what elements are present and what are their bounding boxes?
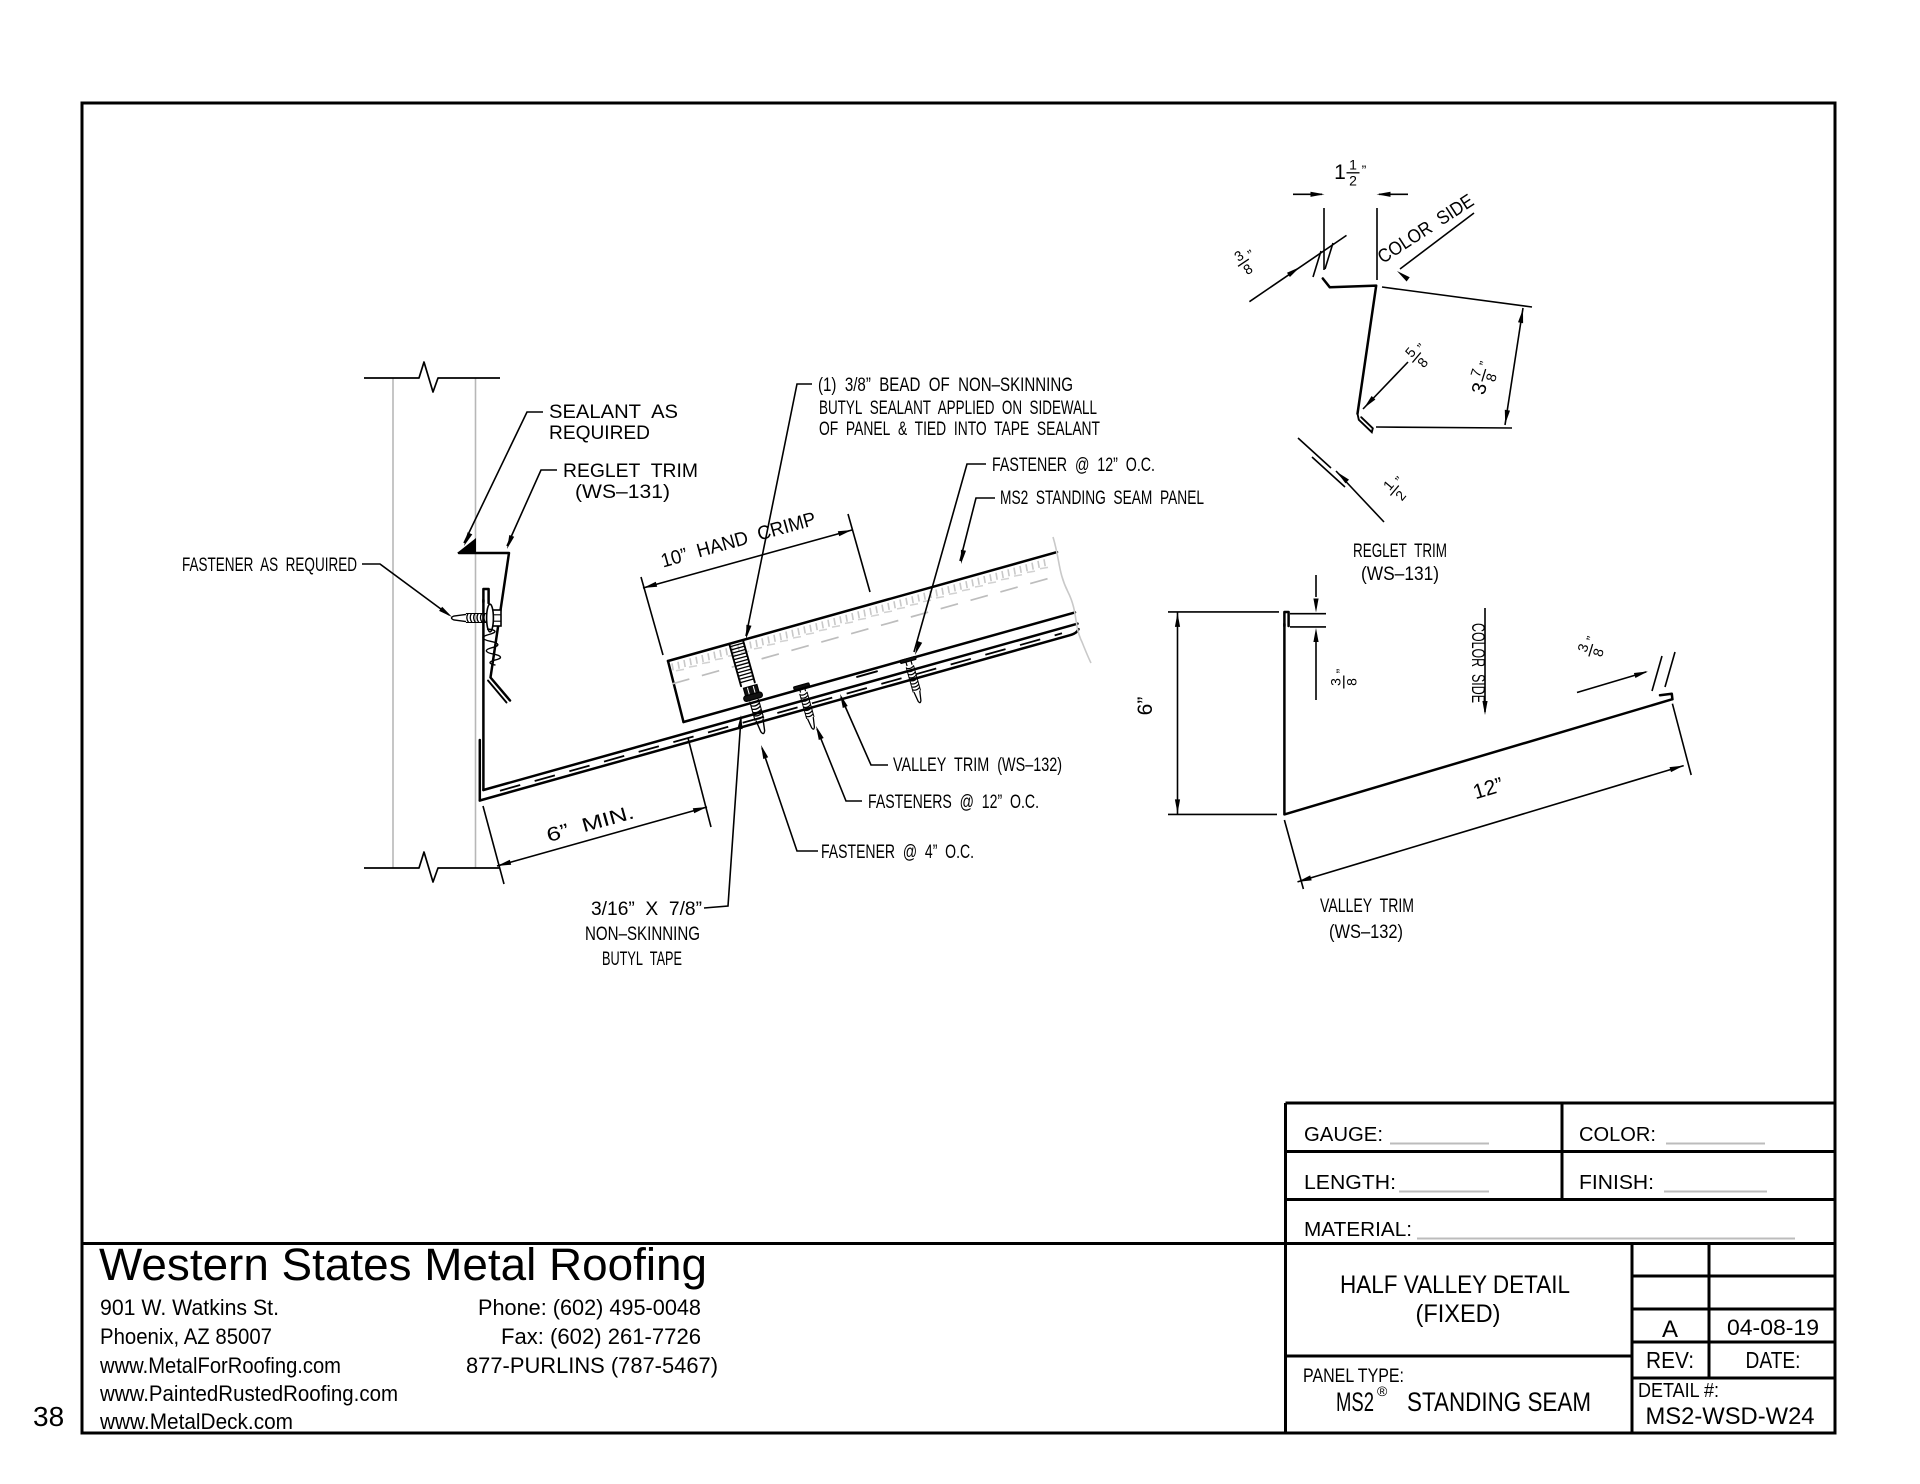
- svg-text:Fax: (602) 261-7726: Fax: (602) 261-7726: [501, 1324, 701, 1349]
- svg-text:REV:: REV:: [1646, 1347, 1694, 1373]
- svg-text:(1) 3/8” BEAD OF NON–SKINN: (1) 3/8” BEAD OF NON–SKINNING: [818, 374, 1073, 396]
- svg-text:NON–SKINNING: NON–SKINNING: [585, 923, 700, 945]
- svg-text:MS2-WSD-W24: MS2-WSD-W24: [1646, 1403, 1815, 1430]
- svg-text:8: 8: [1589, 646, 1607, 658]
- svg-text:3: 3: [1468, 380, 1492, 397]
- svg-text:MATERIAL:: MATERIAL:: [1304, 1219, 1412, 1241]
- svg-text:STANDING SEAM: STANDING SEAM: [1407, 1387, 1591, 1417]
- svg-text:3: 3: [1328, 678, 1344, 686]
- svg-text:8: 8: [1482, 371, 1500, 383]
- svg-text:8: 8: [1414, 354, 1431, 370]
- svg-text:”: ”: [1476, 359, 1493, 368]
- svg-text:MS2 STANDING SEAM PANEL: MS2 STANDING SEAM PANEL: [1000, 487, 1204, 509]
- svg-text:1: 1: [1334, 161, 1346, 184]
- svg-text:www.MetalForRoofing.com: www.MetalForRoofing.com: [99, 1353, 341, 1378]
- svg-text:877-PURLINS (787-5467): 877-PURLINS (787-5467): [466, 1353, 718, 1378]
- svg-text:04-08-19: 04-08-19: [1727, 1315, 1819, 1340]
- svg-text:COLOR:: COLOR:: [1579, 1124, 1656, 1146]
- svg-text:12”: 12”: [1470, 773, 1506, 804]
- svg-text:”: ”: [1333, 668, 1349, 673]
- svg-text:8: 8: [1240, 260, 1256, 278]
- svg-text:REGLET TRIM: REGLET TRIM: [1353, 540, 1447, 562]
- svg-text:8: 8: [1344, 678, 1360, 686]
- svg-text:Phoenix, AZ 85007: Phoenix, AZ 85007: [100, 1324, 272, 1349]
- svg-text:A: A: [1662, 1316, 1678, 1343]
- svg-text:PANEL TYPE:: PANEL TYPE:: [1303, 1366, 1404, 1387]
- svg-text:MS2: MS2: [1336, 1387, 1374, 1417]
- svg-text:FASTENER @ 12” O.C.: FASTENER @ 12” O.C.: [992, 454, 1155, 476]
- svg-text:38: 38: [33, 1401, 64, 1432]
- svg-text:REGLET TRIM: REGLET TRIM: [563, 460, 698, 482]
- svg-text:FASTENERS @ 12” O.C.: FASTENERS @ 12” O.C.: [868, 791, 1039, 813]
- svg-text:FINISH:: FINISH:: [1579, 1172, 1654, 1194]
- svg-text:2: 2: [1392, 487, 1409, 503]
- svg-text:6”: 6”: [1134, 697, 1157, 716]
- svg-text:HALF VALLEY DETAIL: HALF VALLEY DETAIL: [1340, 1271, 1570, 1299]
- svg-text:(WS–131): (WS–131): [575, 481, 670, 503]
- svg-text:VALLEY TRIM (WS–132): VALLEY TRIM (WS–132): [893, 754, 1062, 776]
- svg-text:(WS–132): (WS–132): [1329, 921, 1403, 943]
- svg-text:LENGTH:: LENGTH:: [1304, 1172, 1396, 1194]
- svg-text:FASTENER @ 4” O.C.: FASTENER @ 4” O.C.: [821, 841, 974, 863]
- svg-text:(WS–131): (WS–131): [1361, 563, 1439, 585]
- svg-text:”: ”: [1583, 634, 1600, 643]
- svg-text:REQUIRED: REQUIRED: [549, 422, 650, 444]
- svg-text:”: ”: [1362, 162, 1367, 178]
- svg-text:(FIXED): (FIXED): [1416, 1300, 1501, 1328]
- svg-text:®: ®: [1377, 1383, 1388, 1399]
- svg-text:BUTYL TAPE: BUTYL TAPE: [602, 948, 682, 970]
- svg-text:www.PaintedRustedRoofing.com: www.PaintedRustedRoofing.com: [99, 1381, 398, 1406]
- svg-text:COLOR SIDE: COLOR SIDE: [1374, 191, 1478, 269]
- svg-text:901 W. Watkins St.: 901 W. Watkins St.: [100, 1295, 279, 1320]
- svg-text:Phone: (602) 495-0048: Phone: (602) 495-0048: [478, 1295, 701, 1320]
- svg-text:BUTYL SEALANT APPLIED ON S: BUTYL SEALANT APPLIED ON SIDEWALL: [819, 397, 1097, 419]
- svg-text:3/16” X 7/8”: 3/16” X 7/8”: [591, 898, 702, 920]
- svg-text:2: 2: [1349, 173, 1357, 189]
- svg-text:SEALANT AS: SEALANT AS: [549, 401, 678, 423]
- svg-text:www.MetalDeck.com: www.MetalDeck.com: [99, 1409, 293, 1434]
- svg-text:OF PANEL & TIED INTO TAPE: OF PANEL & TIED INTO TAPE SEALANT: [819, 418, 1100, 440]
- svg-text:10” HAND CRIMP: 10” HAND CRIMP: [658, 508, 818, 572]
- svg-text:1: 1: [1349, 157, 1357, 173]
- svg-text:Western States Metal Roofing: Western States Metal Roofing: [99, 1239, 707, 1290]
- svg-text:DETAIL #:: DETAIL #:: [1638, 1380, 1719, 1402]
- svg-text:VALLEY TRIM: VALLEY TRIM: [1320, 895, 1414, 917]
- svg-text:DATE:: DATE:: [1746, 1347, 1801, 1373]
- svg-text:”: ”: [1245, 246, 1258, 262]
- svg-text:FASTENER AS REQUIRED: FASTENER AS REQUIRED: [182, 554, 357, 576]
- svg-text:GAUGE:: GAUGE:: [1304, 1124, 1383, 1146]
